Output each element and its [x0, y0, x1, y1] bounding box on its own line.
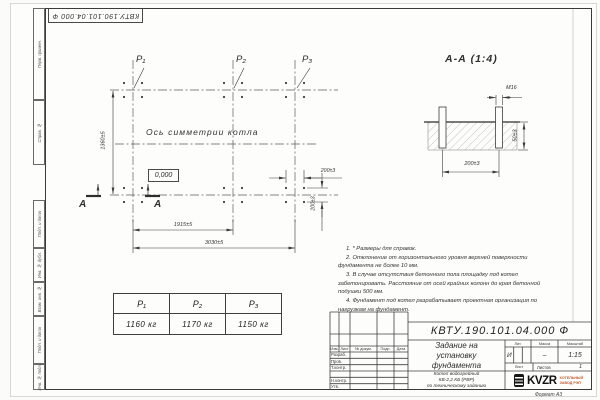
titleblock-sheets-cell: Листов 1 — [533, 363, 592, 371]
section-title: А-А (1:4) — [445, 53, 498, 65]
titleblock-col-doc: № докум. — [350, 346, 377, 352]
load-point-p3: Р₃ — [302, 54, 312, 65]
margin-label: Перв. примен. — [37, 40, 42, 68]
margin-box-podp-data-1: Подп. и дата — [33, 200, 45, 248]
margin-box-inv-podl: Инв. № подл. — [33, 364, 45, 390]
load-point-p2: Р₂ — [236, 54, 246, 65]
symmetry-axis-label: Ось симметрии котла — [146, 127, 259, 137]
section-cut-marks — [86, 184, 160, 196]
dim-section-200: 200±3 — [447, 161, 497, 167]
note-1: 1. * Размеры для справок. — [338, 245, 546, 254]
drawing-page: КВТУ.190.101.04.000 Ф Перв. примен. Спра… — [0, 0, 600, 400]
dim-section-50: 50±3 — [513, 118, 522, 154]
load-point-p1: Р₁ — [136, 54, 145, 65]
anchor-bolt-dots — [123, 82, 305, 203]
kvzr-caption-line2: ЗАВОД РЭП — [560, 381, 583, 385]
titleblock-scale-value: 1:15 — [558, 347, 592, 363]
titleblock-col-data: Дата — [394, 346, 408, 352]
section-letter-right: А — [154, 199, 161, 210]
titleblock-row-tkontr: Т.контр. — [331, 365, 346, 371]
titleblock-col-izm: Изм. — [330, 346, 339, 352]
margin-box-sprav-n: Справ. № — [33, 100, 45, 165]
margin-label: Взам. инв. № — [37, 286, 42, 312]
titleblock-row-utv: Утв. — [331, 384, 339, 390]
titleblock-sheet-label: Лист — [505, 363, 533, 371]
top-designation-box: КВТУ.190.101.04.000 Ф — [48, 8, 143, 23]
titleblock-sheets-value: 1 — [579, 364, 582, 370]
titleblock-col-list: Лист — [339, 346, 350, 352]
plan-dimensions — [113, 68, 342, 253]
dim-3030: 3030±5 — [189, 240, 239, 246]
level-mark: 0,000 — [148, 169, 179, 182]
margin-box-vzam-inv: Взам. инв. № — [33, 282, 45, 316]
load-table-value: 1170 кг — [170, 314, 226, 334]
titleblock-lit-value: И — [505, 347, 514, 363]
load-table-header: Р₃ — [226, 294, 281, 314]
load-table-header: Р₂ — [170, 294, 226, 314]
margin-label: Подп. и дата — [37, 327, 42, 353]
dim-bolt-h: 200±3 — [310, 168, 346, 174]
foundation-bolt — [439, 107, 446, 148]
titleblock-lit-label: Лит. — [505, 340, 531, 347]
titleblock-scale-label: Масштаб — [558, 340, 592, 347]
dim-bolt-v: 200±3 — [311, 184, 320, 224]
foundation-bolt — [496, 107, 503, 148]
margin-label: Подп. и дата — [37, 211, 42, 237]
margin-box-inv-dubl: Инв. № дубл. — [33, 248, 45, 282]
dim-1915: 1915±5 — [158, 222, 208, 228]
note-2: 2. Отклонение от горизонтального уровня … — [338, 254, 546, 271]
thread-label-m16: М16 — [506, 85, 517, 91]
dim-1360: 1360±5 — [101, 120, 110, 162]
kvzr-logo-mark — [514, 374, 524, 387]
margin-label: Инв. № дубл. — [37, 252, 42, 278]
margin-label: Инв. № подл. — [37, 364, 42, 390]
kvzr-logo-caption: КОТЕЛЬНЫЙ ЗАВОД РЭП — [560, 376, 583, 385]
note-4: 4. Фундамент под котел разрабатывает про… — [338, 297, 546, 314]
titleblock-sheets-label: Листов — [537, 365, 551, 370]
titleblock-designation: КВТУ.190.101.04.000 Ф — [410, 323, 590, 338]
load-table: Р₁ Р₂ Р₃ 1160 кг 1170 кг 1150 кг — [113, 293, 282, 335]
kvzr-caption-line1: КОТЕЛЬНЫЙ — [560, 376, 583, 380]
plan-linework — [110, 60, 338, 222]
margin-label: Справ. № — [37, 123, 42, 143]
titleblock-doc-title: Задание на установку фундамента — [425, 341, 489, 371]
titleblock-logo-cell: KVZR КОТЕЛЬНЫЙ ЗАВОД РЭП — [505, 371, 592, 390]
titleblock-product-cell: Котел водогрейный КВ-2,2 КБ (РВР) по тех… — [408, 372, 505, 390]
note-3: 3. В случае отсутствия бетонного пола пл… — [338, 271, 546, 297]
kvzr-logo-text: KVZR — [527, 375, 557, 387]
titleblock-col-podp: Подп. — [377, 346, 394, 352]
notes-block: 1. * Размеры для справок. 2. Отклонение … — [338, 245, 546, 315]
load-table-header: Р₁ — [114, 294, 170, 314]
titleblock-mass-value: – — [531, 347, 558, 363]
titleblock-product-line: по техническому заданию — [408, 384, 505, 390]
section-letter-left: А — [79, 199, 86, 210]
load-table-header-row: Р₁ Р₂ Р₃ — [114, 294, 281, 314]
titleblock-doc-title-cell: Задание на установку фундамента — [408, 340, 505, 371]
margin-box-podp-data-2: Подп. и дата — [33, 316, 45, 364]
load-table-value: 1160 кг — [114, 314, 170, 334]
load-table-value: 1150 кг — [226, 314, 281, 334]
load-table-value-row: 1160 кг 1170 кг 1150 кг — [114, 314, 281, 334]
margin-box-perv-primen: Перв. примен. — [33, 8, 45, 100]
top-designation-text: КВТУ.190.101.04.000 Ф — [52, 12, 139, 19]
titleblock-mass-label: Масса — [531, 340, 558, 347]
format-label: Формат А3 — [505, 391, 592, 399]
